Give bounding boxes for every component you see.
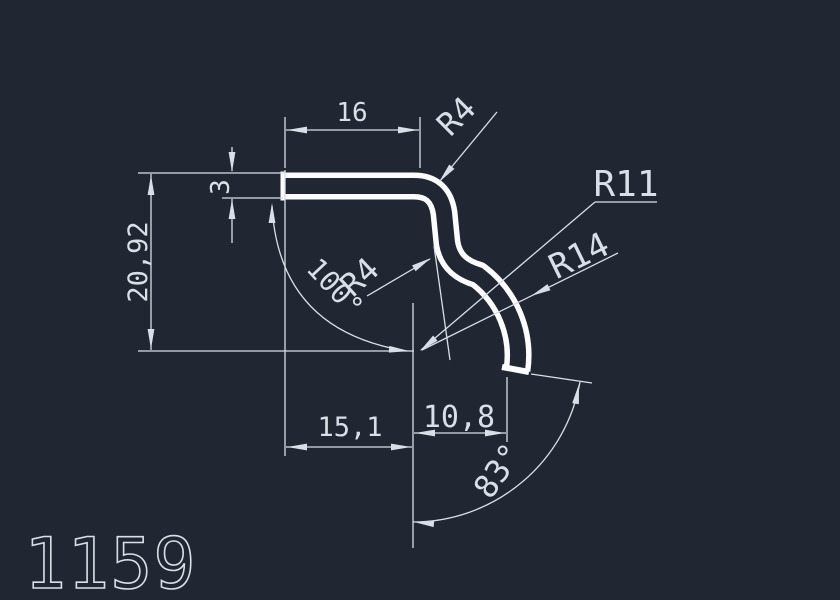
arrowhead [414,519,435,528]
dim-text-end-face-angle: 83° [466,436,530,505]
dim-wall-thickness: 3 [138,147,287,243]
dim-bottom-offset-right: 10,8 [413,303,507,548]
arrowhead [148,329,155,349]
arrowhead [398,127,418,134]
dim-top-width: 16 [285,98,420,168]
dim-text-top-width: 16 [336,98,367,128]
dim-text-hook-radius-outer: R14 [543,225,616,288]
dim-text-bottom-offset-right: 10,8 [423,400,495,435]
arrowhead [229,199,236,219]
dim-text-overall-height: 20,92 [123,221,154,302]
arrowhead [389,346,410,355]
cad-drawing: 16 3 20,92 15,1 10,8 [0,0,840,600]
part-number-label: 1159 [24,523,197,600]
arrowhead [412,255,433,271]
arrowhead [229,152,236,172]
arrowhead [287,127,307,134]
arrowhead [269,203,276,223]
dim-text-corner-radius: R4 [429,89,483,143]
arrowhead [391,444,411,451]
dim-text-hook-radius-inner: R11 [593,164,658,205]
dim-text-wall-thickness: 3 [206,179,236,195]
angle-ray [531,374,592,383]
dim-text-bottom-offset-left: 15,1 [317,412,382,443]
arrowhead [287,444,307,451]
arrowhead [418,336,438,354]
dim-corner-radius: R4 [429,89,497,184]
drawing-canvas[interactable]: 16 3 20,92 15,1 10,8 [0,0,840,600]
arrowhead [572,383,582,404]
dim-end-face-angle: 83° [413,374,592,527]
arrowhead [530,284,551,299]
arrowhead [148,175,155,195]
